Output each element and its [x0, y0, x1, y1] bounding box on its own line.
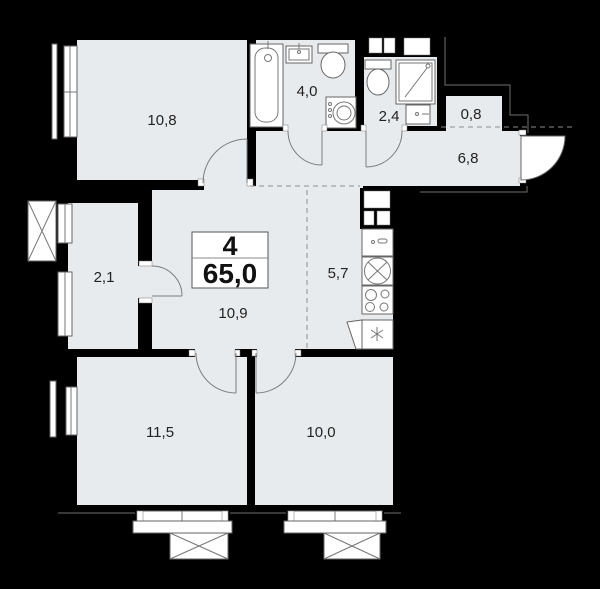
- doorway-bedroom-bottom-right: [257, 349, 295, 357]
- balcony-box-icon: [324, 533, 380, 559]
- room-area-label-storage: 0,8: [461, 106, 482, 123]
- kitchen-sink-icon: [362, 229, 393, 256]
- washing-machine-icon: [326, 97, 356, 128]
- floor-plan-page: 4 65,0 10,8 4,0 2,4 0,8 6,8 2,1 5,7 10,9…: [0, 0, 600, 589]
- room-area-label-bedroom-bottom-left: 11,5: [146, 424, 174, 441]
- doorway-wardrobe: [138, 266, 152, 298]
- washbasin-icon: [406, 105, 430, 124]
- doorway-bathroom: [288, 124, 322, 132]
- balcony-box-icon: [28, 201, 56, 261]
- doorway-bedroom-top-left: [204, 180, 247, 190]
- doorway-toilet: [366, 124, 402, 132]
- room-area-label-wardrobe: 2,1: [94, 269, 115, 286]
- summary-box: 4 65,0: [192, 231, 268, 289]
- room-hallway: [256, 131, 520, 186]
- ventilation-shaft-icon: [360, 188, 394, 229]
- doorway-bedroom-bottom-left: [195, 349, 235, 357]
- room-area-label-kitchen: 5,7: [328, 265, 349, 282]
- room-area-label-toilet: 2,4: [379, 108, 400, 125]
- balcony-box-icon: [170, 533, 228, 559]
- toilet-icon: [365, 60, 391, 95]
- bathtub-icon: [250, 41, 283, 127]
- round-sink-icon: [362, 257, 393, 285]
- total-area: 65,0: [203, 258, 258, 289]
- window-icon: [52, 44, 77, 139]
- room-area-label-bedroom-bottom-right: 10,0: [306, 424, 335, 441]
- room-area-label-living: 10,9: [218, 305, 247, 322]
- floor-plan-svg: 4 65,0 10,8 4,0 2,4 0,8 6,8 2,1 5,7 10,9…: [0, 0, 600, 589]
- room-area-label-hallway: 6,8: [458, 150, 479, 167]
- stove-icon: [362, 286, 393, 314]
- shower-cabin-icon: [396, 60, 435, 104]
- room-area-label-bathroom: 4,0: [297, 83, 318, 100]
- room-area-label-bedroom-top-left: 10,8: [147, 112, 176, 129]
- rooms-count: 4: [222, 231, 237, 261]
- window-icon: [284, 511, 386, 533]
- washbasin-icon: [286, 43, 312, 63]
- room-bedroom-top-left: [77, 40, 247, 180]
- window-icon: [133, 511, 232, 533]
